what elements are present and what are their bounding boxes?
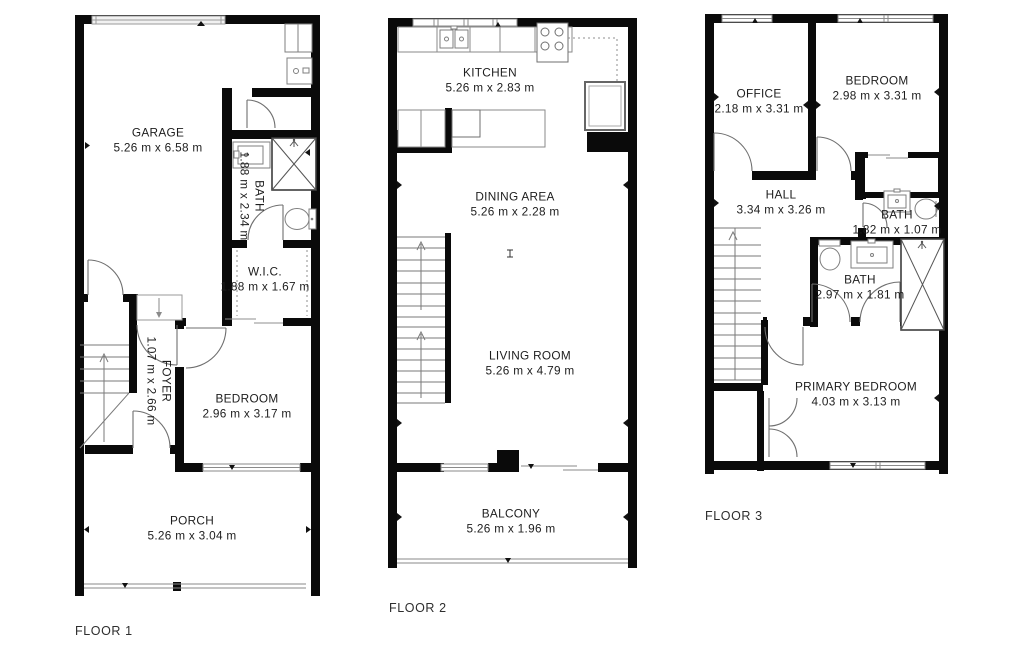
- room-dims: 1.82 m x 1.07 m: [852, 222, 941, 237]
- room-dims: 2.18 m x 3.31 m: [714, 101, 803, 116]
- stove-icon: [537, 23, 568, 62]
- floor-1-plan: GARAGE 5.26 m x 6.58 m BATH 1.88 m x 2.3…: [70, 10, 332, 650]
- floor-1-drawing: [70, 10, 332, 650]
- room-name: BATH: [852, 208, 941, 223]
- room-dims: 2.96 m x 3.17 m: [202, 406, 291, 421]
- room-name: W.I.C.: [220, 265, 309, 280]
- room-label-dining-area: DINING AREA 5.26 m x 2.28 m: [470, 190, 559, 219]
- room-dims: 1.07 m x 2.66 m: [145, 336, 160, 425]
- balcony-window: [441, 464, 598, 471]
- room-label-primary-bedroom: PRIMARY BEDROOM 4.03 m x 3.13 m: [795, 380, 917, 409]
- section-marker: [507, 250, 513, 257]
- washer-icon: [287, 58, 312, 84]
- floor-1-caption: FLOOR 1: [75, 624, 133, 638]
- room-label-living-room: LIVING ROOM 5.26 m x 4.79 m: [485, 349, 574, 378]
- stairs-icon: [397, 237, 445, 403]
- room-name: FOYER: [159, 336, 174, 425]
- room-name: GARAGE: [113, 126, 202, 141]
- walls: [75, 15, 320, 596]
- room-name: BEDROOM: [832, 74, 921, 89]
- room-name: PRIMARY BEDROOM: [795, 380, 917, 395]
- room-label-porch: PORCH 5.26 m x 3.04 m: [147, 514, 236, 543]
- room-label-kitchen: KITCHEN 5.26 m x 2.83 m: [445, 66, 534, 95]
- floor-3-caption: FLOOR 3: [705, 509, 763, 523]
- room-name: PORCH: [147, 514, 236, 529]
- room-name: HALL: [736, 188, 825, 203]
- room-dims: 1.88 m x 1.67 m: [220, 279, 309, 294]
- room-name: KITCHEN: [445, 66, 534, 81]
- toilet-icon: [285, 209, 316, 230]
- room-label-bath-main: BATH 2.97 m x 1.81 m: [815, 273, 904, 302]
- room-dims: 2.98 m x 3.31 m: [832, 88, 921, 103]
- floor-2-caption: FLOOR 2: [389, 601, 447, 615]
- room-dims: 4.03 m x 3.13 m: [795, 394, 917, 409]
- room-label-balcony: BALCONY 5.26 m x 1.96 m: [466, 507, 555, 536]
- room-label-bath: BATH 1.88 m x 2.34 m: [238, 151, 267, 240]
- upper-cabinet-dashed: [568, 38, 617, 82]
- room-label-bath-upper: BATH 1.82 m x 1.07 m: [852, 208, 941, 237]
- room-label-hall: HALL 3.34 m x 3.26 m: [736, 188, 825, 217]
- room-name: LIVING ROOM: [485, 349, 574, 364]
- kitchen-island: [398, 110, 545, 147]
- shower-icon: [901, 239, 944, 330]
- kitchen-window: [413, 19, 517, 27]
- floorplan-canvas: GARAGE 5.26 m x 6.58 m BATH 1.88 m x 2.3…: [0, 0, 1024, 664]
- room-label-office: OFFICE 2.18 m x 3.31 m: [714, 87, 803, 116]
- room-dims: 2.97 m x 1.81 m: [815, 287, 904, 302]
- room-label-foyer: FOYER 1.07 m x 2.66 m: [145, 336, 174, 425]
- room-dims: 5.26 m x 3.04 m: [147, 528, 236, 543]
- room-label-bedroom: BEDROOM 2.96 m x 3.17 m: [202, 392, 291, 421]
- room-label-bedroom: BEDROOM 2.98 m x 3.31 m: [832, 74, 921, 103]
- room-name: BEDROOM: [202, 392, 291, 407]
- room-name: BATH: [252, 151, 267, 240]
- bedroom-closet: [865, 152, 938, 192]
- porch-edge: [84, 583, 306, 588]
- room-name: BATH: [815, 273, 904, 288]
- sink-icon: [851, 239, 893, 268]
- room-dims: 1.88 m x 2.34 m: [238, 151, 253, 240]
- floor-2-plan: KITCHEN 5.26 m x 2.83 m DINING AREA 5.26…: [385, 10, 643, 622]
- wall-markers: [84, 142, 311, 533]
- room-dims: 5.26 m x 6.58 m: [113, 140, 202, 155]
- room-dims: 3.34 m x 3.26 m: [736, 202, 825, 217]
- room-dims: 5.26 m x 2.83 m: [445, 80, 534, 95]
- toilet-icon: [819, 240, 840, 270]
- room-name: OFFICE: [714, 87, 803, 102]
- primary-bedroom-window: [830, 462, 925, 469]
- room-label-wic: W.I.C. 1.88 m x 1.67 m: [220, 265, 309, 294]
- stairs-icon: [714, 228, 761, 380]
- shower-icon: [272, 138, 316, 190]
- entry-step: [137, 295, 182, 320]
- bedroom-window: [838, 15, 933, 23]
- room-name: DINING AREA: [470, 190, 559, 205]
- fridge-icon: [585, 82, 625, 130]
- room-label-garage: GARAGE 5.26 m x 6.58 m: [113, 126, 202, 155]
- garage-door: [92, 16, 225, 26]
- stairs-icon: [80, 345, 129, 448]
- floor-3-plan: OFFICE 2.18 m x 3.31 m BEDROOM 2.98 m x …: [700, 10, 956, 534]
- room-dims: 5.26 m x 4.79 m: [485, 363, 574, 378]
- cabinet-icon: [285, 24, 312, 52]
- balcony-railing: [397, 558, 628, 563]
- room-name: BALCONY: [466, 507, 555, 522]
- room-dims: 5.26 m x 1.96 m: [466, 521, 555, 536]
- room-dims: 5.26 m x 2.28 m: [470, 204, 559, 219]
- office-window: [722, 15, 772, 23]
- bedroom-window: [203, 464, 300, 471]
